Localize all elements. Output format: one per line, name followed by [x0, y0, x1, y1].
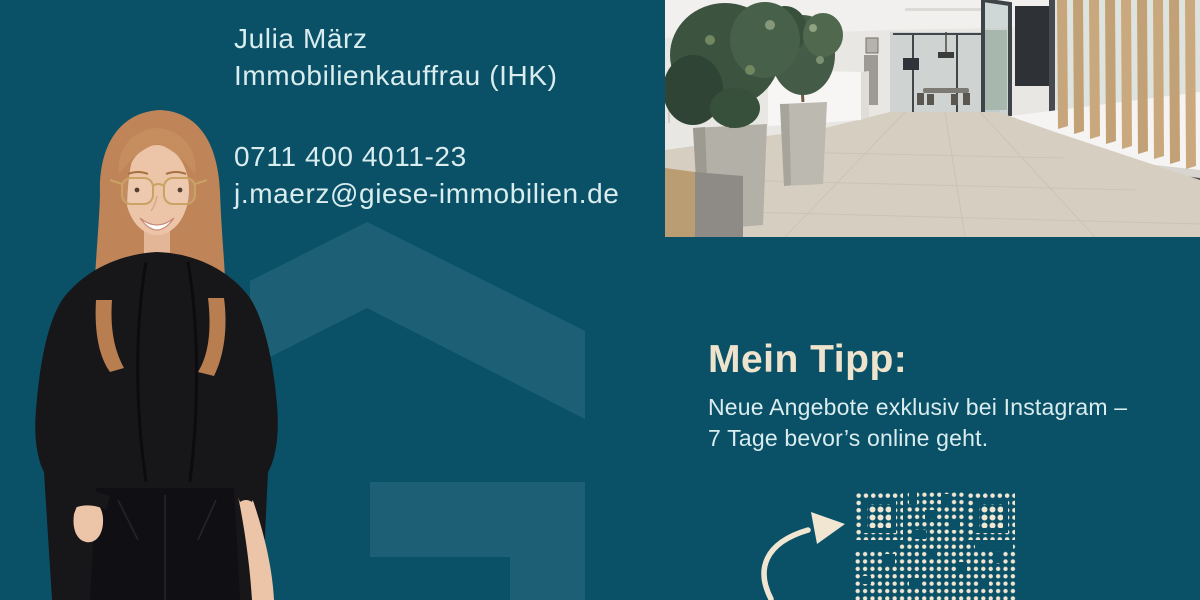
agent-phone: 0711 400 4011-23 — [234, 138, 619, 175]
instagram-qr-code — [853, 488, 1016, 600]
qr-finder-top-right — [966, 491, 1015, 540]
tip-line-1: Neue Angebote exklusiv bei Instagram – — [708, 394, 1127, 420]
office-interior-photo — [665, 0, 1200, 237]
tip-block: Mein Tipp: Neue Angebote exklusiv bei In… — [708, 338, 1127, 454]
tip-heading: Mein Tipp: — [708, 338, 1127, 382]
agent-email: j.maerz@giese-immobilien.de — [234, 175, 619, 212]
contact-block: Julia März Immobilienkauffrau (IHK) 0711… — [234, 20, 619, 212]
curved-arrow-icon — [740, 498, 855, 600]
tip-text: Neue Angebote exklusiv bei Instagram – 7… — [708, 392, 1127, 454]
tip-line-2: 7 Tage bevor’s online geht. — [708, 425, 988, 451]
qr-finder-top-left — [854, 491, 903, 540]
agent-role: Immobilienkauffrau (IHK) — [234, 57, 619, 94]
flyer-canvas: Julia März Immobilienkauffrau (IHK) 0711… — [0, 0, 1200, 600]
agent-name: Julia März — [234, 20, 619, 57]
office-interior-illustration — [665, 0, 1200, 237]
